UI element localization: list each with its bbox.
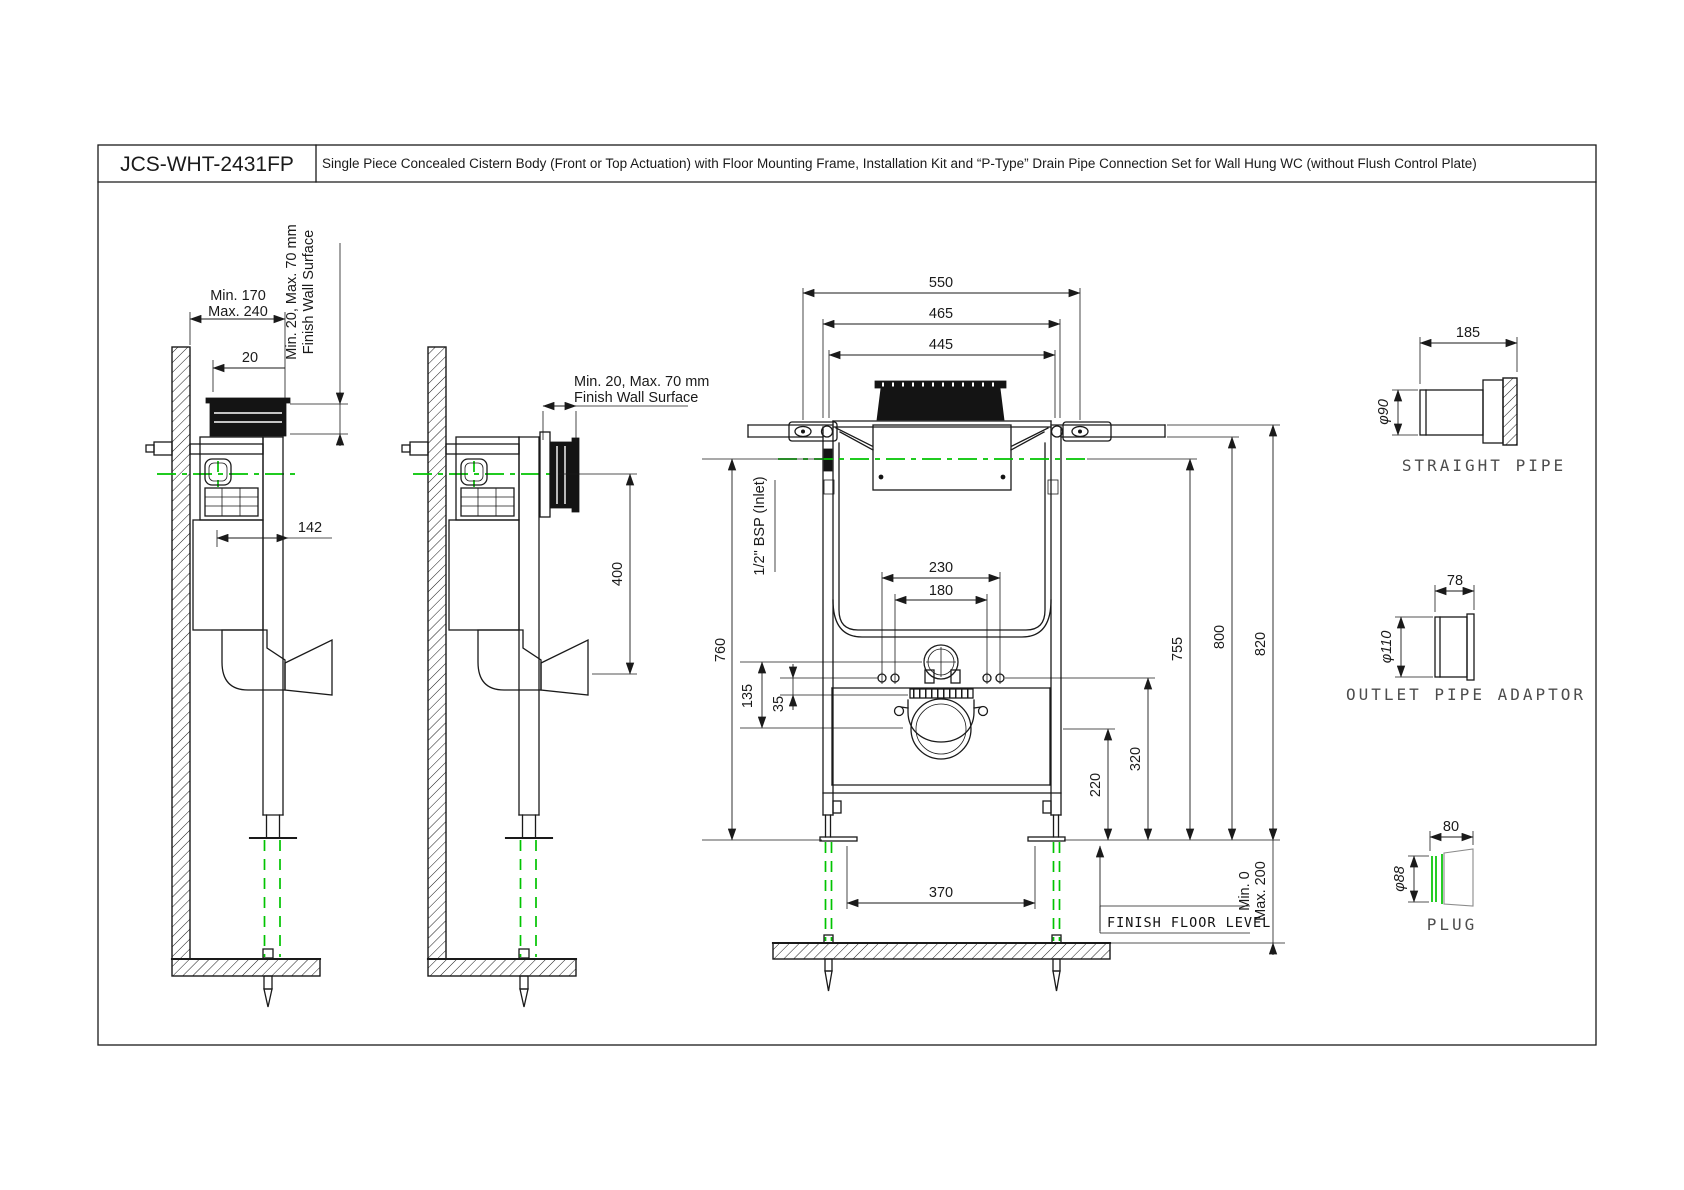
flush-pipe-connection [924,645,960,683]
dim-depth-max: Max. 240 [208,304,268,320]
drawing-border [98,145,1596,1045]
inlet-label: 1/2" BSP (Inlet) [752,476,768,575]
dim-height-320: 320 [1128,747,1144,771]
dim-offset-20: 20 [242,350,258,366]
dim-height-800: 800 [1212,625,1228,649]
side-view-2-dimensions: Min. 20, Max. 70 mm Finish Wall Surface … [543,374,709,674]
wall-note-line2: Finish Wall Surface [301,230,317,354]
front-view: 550 465 445 230 180 760 [702,275,1285,991]
dim-height-755: 755 [1170,637,1186,661]
floor-slab [428,959,576,976]
dim-width-445: 445 [929,337,953,353]
anchor-bolt [520,976,528,1007]
outlet-elbow [478,630,541,690]
outlet-cone [285,640,332,695]
wall-note-line1: Min. 20, Max. 70 mm [574,374,709,390]
technical-drawing: JCS-WHT-2431FP Single Piece Concealed Ci… [0,0,1684,1190]
dim-adaptor-diameter-110: φ110 [1379,631,1395,664]
floor-range-min: Min. 0 [1237,871,1253,911]
dim-bolt-span-180: 180 [929,583,953,599]
outlet-pipe-adaptor-figure: 78 φ110 OUTLET PIPE ADAPTOR [1346,573,1586,704]
dim-offset-35: 35 [771,696,787,712]
dim-height-760: 760 [713,638,729,662]
pipe-flange [1503,378,1517,445]
dim-adaptor-length-78: 78 [1447,573,1463,589]
side-view-top-actuation: Min. 170 Max. 240 20 142 Min. 20, Max. 7… [146,224,348,1007]
dim-width-142: 142 [298,520,322,536]
outlet-elbow [222,630,285,690]
plug-caption: PLUG [1427,915,1478,934]
dim-outlet-drop-400: 400 [610,562,626,586]
drain-pipe-opening [911,699,971,759]
leg-adjuster-nut [1043,801,1051,813]
wall-section [172,347,190,959]
straight-pipe-figure: 185 φ90 STRAIGHT PIPE [1376,325,1566,475]
finish-floor-level-label: FINISH FLOOR LEVEL [1107,915,1271,931]
actuation-cap-front [540,432,579,517]
connector-stack [461,488,514,516]
frame-uprights [820,427,1065,841]
pipe-body [1420,390,1483,435]
plug-body [1444,849,1473,906]
dim-bolt-span-230: 230 [929,560,953,576]
dim-width-550: 550 [929,275,953,291]
straight-pipe-caption: STRAIGHT PIPE [1402,456,1566,475]
wall-note-line1: Min. 20, Max. 70 mm [284,224,300,359]
dim-height-220: 220 [1088,773,1104,797]
floor-slab [172,959,320,976]
dim-height-820: 820 [1253,632,1269,656]
dim-depth-min: Min. 170 [210,288,266,304]
service-panel [873,425,1011,490]
actuation-cap [206,398,290,436]
foot-plate-right [1028,837,1065,841]
actuation-access-box [875,381,1006,420]
dim-leg-span-370: 370 [929,885,953,901]
dim-width-465: 465 [929,306,953,322]
floor-range-max: Max. 200 [1253,861,1269,921]
connector-stack [205,488,258,516]
front-view-dimensions: 550 465 445 230 180 760 [702,275,1285,955]
wall-section [428,347,446,959]
model-number: JCS-WHT-2431FP [120,153,294,176]
side-view-1-dimensions: Min. 170 Max. 240 20 142 Min. 20, Max. 7… [190,224,348,547]
drawing-description: Single Piece Concealed Cistern Body (Fro… [322,156,1477,171]
side-view-front-actuation: Min. 20, Max. 70 mm Finish Wall Surface … [402,347,709,1007]
drawing-sheet: JCS-WHT-2431FP Single Piece Concealed Ci… [0,0,1684,1190]
foot-plate-left [820,837,857,841]
leg-adjuster-nut [833,801,841,813]
dim-pipe-diameter-90: φ90 [1376,399,1392,425]
anchor-bolt [264,976,272,1007]
wall-fixing-rod [402,442,519,455]
outlet-pipe-adaptor-caption: OUTLET PIPE ADAPTOR [1346,685,1586,704]
wall-note-line2: Finish Wall Surface [574,390,698,406]
outlet-cone [541,640,588,695]
plug-figure: 80 φ88 PLUG [1392,819,1477,934]
dim-plug-length-80: 80 [1443,819,1459,835]
dim-plug-diameter-88: φ88 [1392,866,1408,892]
floor-slab [773,943,1110,959]
title-block: JCS-WHT-2431FP Single Piece Concealed Ci… [98,145,1596,1045]
wall-fixing-rod [146,442,263,455]
cistern-tank-front [824,421,1058,637]
dim-pipe-length-185: 185 [1456,325,1480,341]
drain-clamp-assembly [832,688,1050,785]
dim-offset-135: 135 [740,684,756,708]
